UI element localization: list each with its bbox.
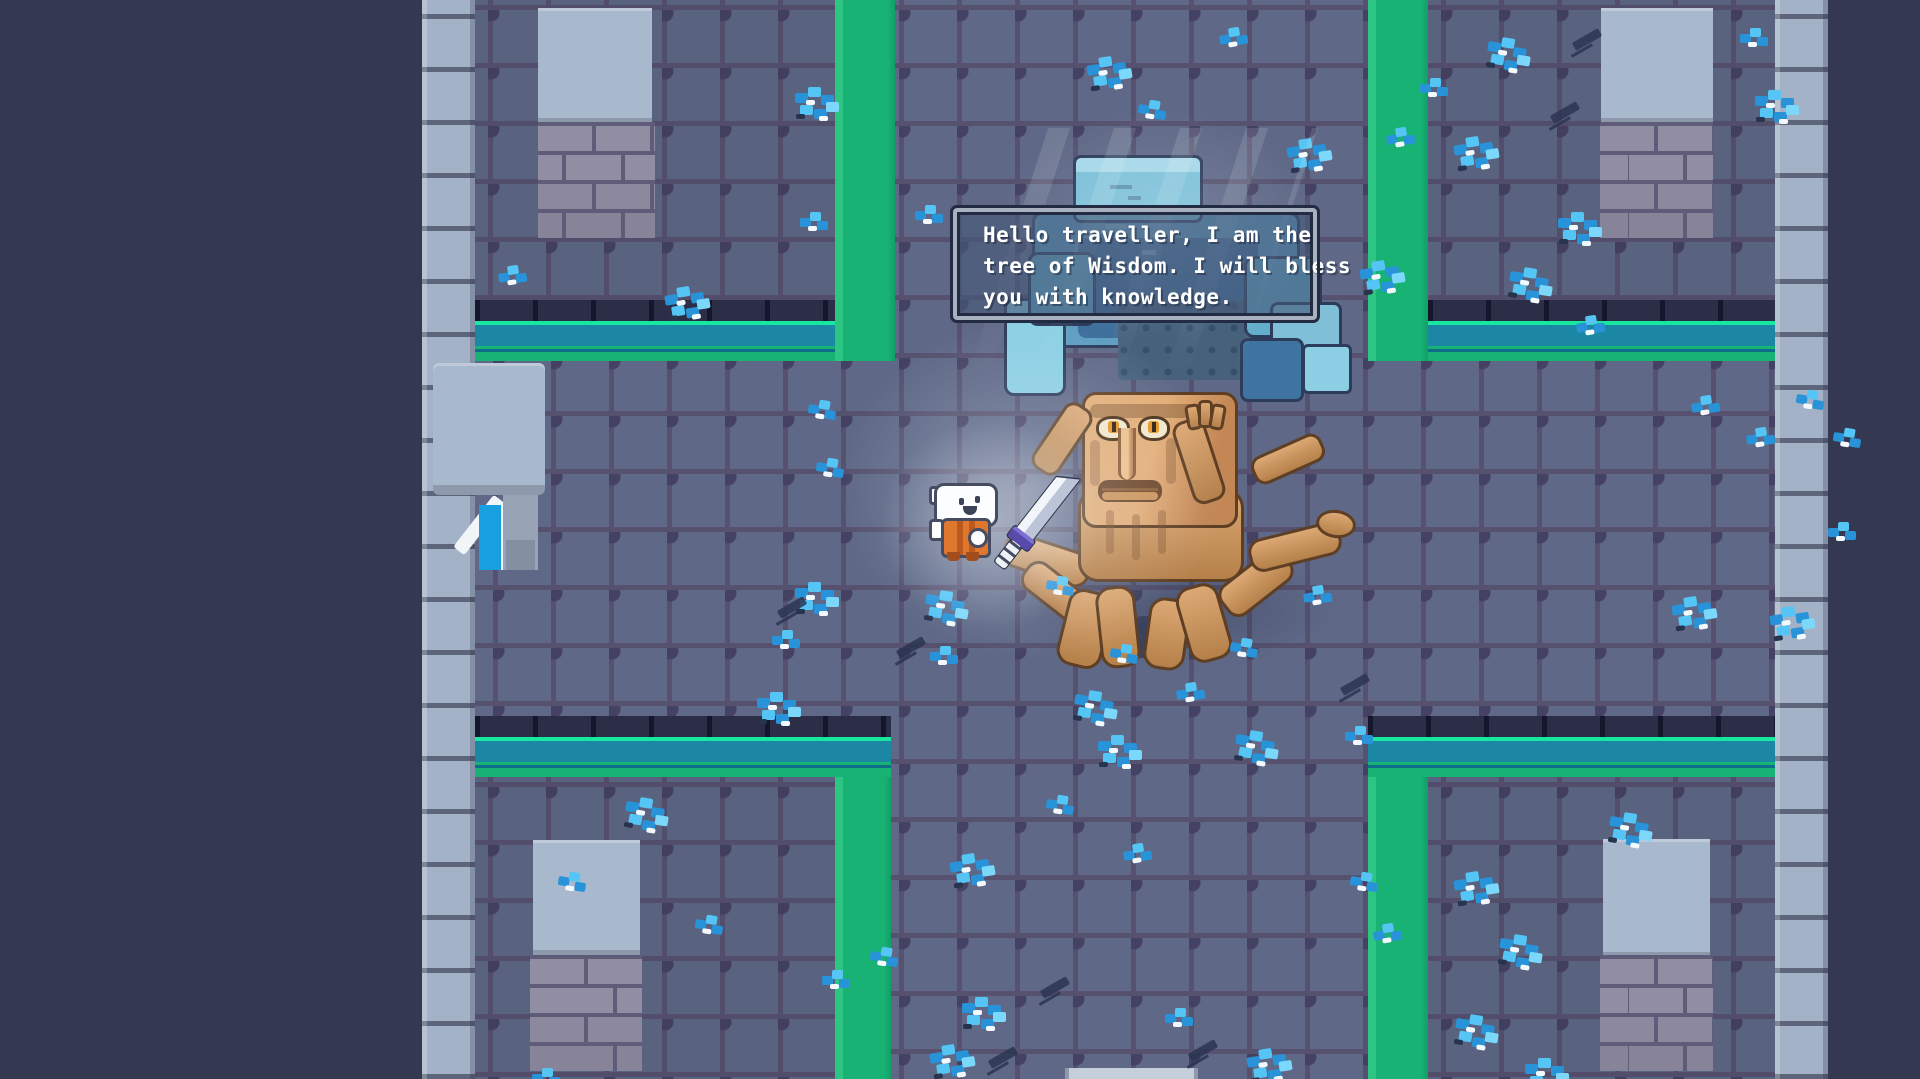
- dialogue-line-1: Hello traveller, I am the: [983, 220, 1299, 251]
- brick-wall-top-right: [1600, 122, 1713, 238]
- stair-block-lower: [506, 540, 535, 570]
- wall-column-right: [1775, 0, 1828, 1079]
- brick-wall-bottom-left: [530, 955, 642, 1079]
- player-foot: [966, 552, 979, 561]
- dialogue-box[interactable]: Hello traveller, I am the tree of Wisdom…: [953, 208, 1317, 320]
- player-arm-left: [929, 519, 944, 541]
- dialogue-line-2: tree of Wisdom. I will bless: [983, 251, 1299, 282]
- canopy-sign-mark: [1128, 196, 1141, 200]
- brick-wall-top-left: [538, 122, 655, 238]
- player-hand: [968, 528, 988, 548]
- canopy-sign-mark: [1110, 185, 1132, 189]
- canopy-cube-right-pale: [1302, 344, 1352, 394]
- path-top-right: [1368, 0, 1428, 361]
- window-top-left: [538, 8, 652, 128]
- canopy-cube-right-dark: [1240, 338, 1304, 402]
- brick-wall-bottom-right: [1600, 955, 1713, 1079]
- trunk-fold: [1158, 510, 1166, 554]
- tree-eye-right: [1138, 416, 1170, 441]
- wall-sign-left: [433, 363, 545, 495]
- void-left: [0, 0, 422, 1079]
- dialogue-line-3: you with knowledge.: [983, 282, 1299, 313]
- tree-nose: [1118, 428, 1136, 480]
- window-bottom-right: [1603, 839, 1710, 962]
- window-top-right: [1601, 8, 1713, 128]
- trunk-fold: [1132, 514, 1140, 560]
- band-top-left: [475, 300, 835, 361]
- window-bottom-left: [533, 840, 640, 960]
- band-bottom-left: [475, 716, 891, 777]
- room-top-left: [475, 0, 835, 300]
- path-top-left: [835, 0, 895, 361]
- bottom-panel: [1065, 1068, 1198, 1079]
- trunk-fold: [1106, 510, 1114, 554]
- water-chute: [479, 505, 505, 570]
- tree-cheek-right: [1166, 438, 1176, 484]
- band-bottom-right: [1368, 716, 1775, 777]
- game-viewport[interactable]: Hello traveller, I am the tree of Wisdom…: [0, 0, 1920, 1079]
- player-foot: [947, 552, 960, 561]
- tree-mouth: [1098, 480, 1162, 502]
- tree-cheek-left: [1090, 440, 1100, 486]
